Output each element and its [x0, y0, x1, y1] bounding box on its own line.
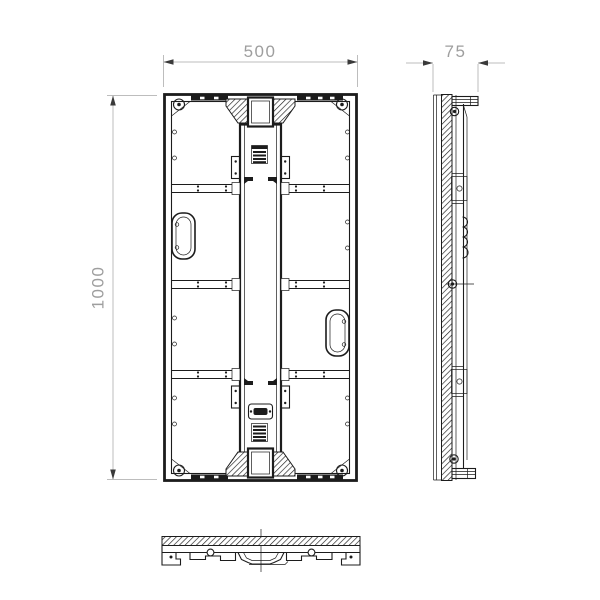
- frame-screw-holes: [173, 130, 350, 426]
- bottom-right-bracket: [287, 549, 333, 560]
- depth-dimension-label: 75: [445, 42, 467, 61]
- dimension-width: 500: [164, 42, 358, 87]
- bottom-left-bracket: [190, 549, 236, 560]
- bottom-view: [162, 529, 360, 572]
- left-handle: [172, 213, 195, 259]
- bottom-mount: [226, 449, 295, 478]
- bottom-right-end-block: [342, 546, 361, 566]
- back-view: [165, 95, 357, 481]
- upper-connector-box: [452, 174, 468, 204]
- bottom-center-tray: [238, 553, 288, 565]
- crossbars: [172, 183, 350, 381]
- technical-drawing: 500 1000 75: [0, 0, 600, 600]
- dimension-height: 1000: [89, 96, 158, 480]
- bottom-vent-grille: [252, 424, 268, 442]
- top-mount: [226, 98, 295, 127]
- width-dimension-label: 500: [244, 42, 277, 61]
- height-dimension-label: 1000: [89, 266, 108, 310]
- bottom-left-end-block: [162, 546, 181, 566]
- top-vent-grille: [252, 146, 268, 164]
- side-view: [434, 95, 479, 481]
- bottom-foot-bracket: [452, 469, 476, 479]
- dimension-depth: 75: [406, 42, 505, 92]
- bottom-face-hatch: [162, 537, 360, 546]
- power-connector: [249, 404, 273, 419]
- right-handle: [326, 310, 349, 356]
- lower-connector-box: [452, 367, 468, 397]
- drawing-canvas: 500 1000 75: [0, 0, 600, 600]
